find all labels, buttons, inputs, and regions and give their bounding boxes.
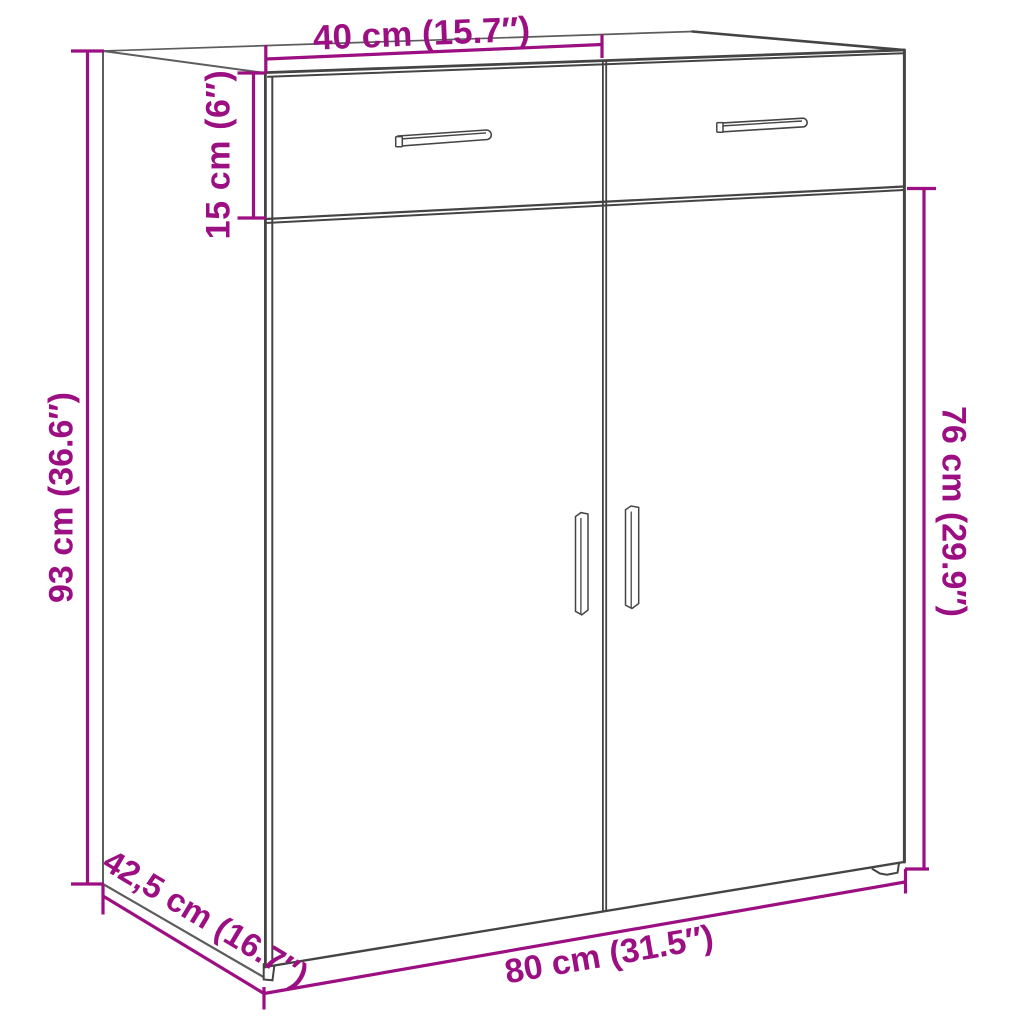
svg-text:15 cm (6″): 15 cm (6″): [200, 70, 238, 240]
svg-text:93 cm (36.6″): 93 cm (36.6″): [43, 392, 81, 603]
svg-text:76 cm (29.9″): 76 cm (29.9″): [935, 406, 973, 617]
